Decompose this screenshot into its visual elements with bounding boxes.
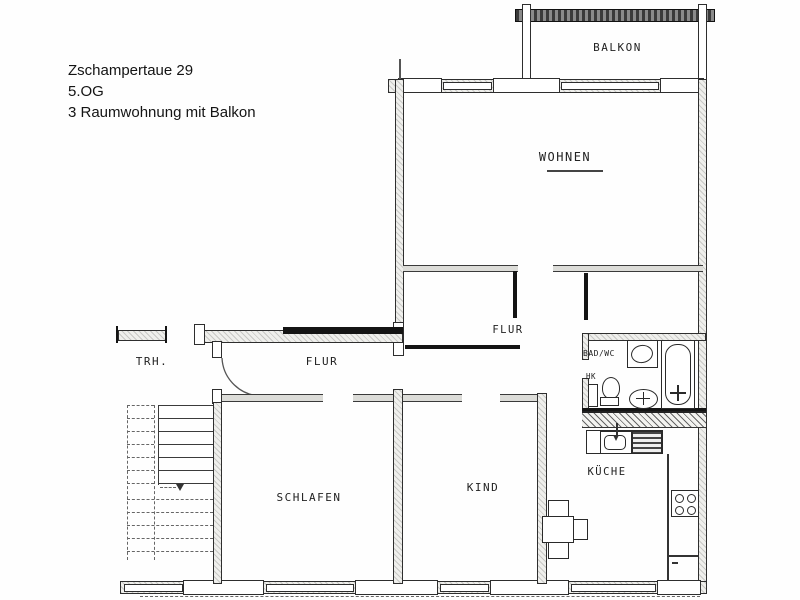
stair-arrow-tail [160, 487, 176, 488]
window-sill-north-1 [443, 82, 492, 90]
label-schlafen: SCHLAFEN [266, 491, 352, 504]
wall-schlafen-kind [393, 389, 403, 584]
window-south-3 [490, 580, 569, 595]
window-south-1 [183, 580, 264, 595]
window-sill-south-2 [266, 584, 354, 592]
wall-flur-partition [405, 345, 520, 349]
wall-wohnen-west [395, 79, 404, 347]
stair-tread [158, 457, 213, 458]
stairs-divider [154, 405, 155, 560]
label-balkon: BALKON [560, 41, 675, 54]
balcony-railing [515, 9, 715, 22]
window-sill-south-1 [124, 584, 183, 592]
radiator [588, 384, 598, 407]
stair-tread-hidden [127, 483, 154, 484]
window-north-2 [493, 78, 560, 93]
stove-burner [675, 506, 684, 515]
stair-tread-hidden [127, 418, 154, 419]
label-bad-wc: BAD/WC [583, 349, 627, 358]
stair-tread [158, 483, 213, 484]
label-kueche: KÜCHE [579, 466, 635, 478]
balcony-post-left [522, 4, 531, 80]
wall-stub-wohnen-door-right [584, 273, 588, 320]
stair-tread [158, 418, 213, 419]
label-hk: HK [586, 372, 606, 381]
wall-schlafen-west [213, 402, 222, 584]
toilet-bowl [602, 377, 620, 399]
wall-kind-kueche [537, 393, 547, 584]
header-floor: 5.OG [68, 81, 256, 102]
kitchen-faucet-arrow [613, 435, 619, 441]
label-flur-lower: FLUR [294, 355, 350, 368]
floorplan-canvas: Zschampertaue 29 5.OG 3 Raumwohnung mit … [0, 0, 800, 600]
window-sill-north-2 [561, 82, 659, 90]
plan-header: Zschampertaue 29 5.OG 3 Raumwohnung mit … [68, 60, 256, 123]
wall-corridor-north-band [283, 327, 403, 334]
scan-artifact-line [140, 596, 700, 597]
stair-tread [158, 431, 213, 432]
stove-burner [687, 494, 696, 503]
stair-tread-hidden [127, 512, 213, 513]
kitchen-chair-bottom [548, 542, 569, 559]
stove-burner [675, 494, 684, 503]
wall-stub-wohnen-door-left [513, 271, 517, 318]
stove-burner [687, 506, 696, 515]
stair-tread [158, 405, 213, 406]
wall-schlafen-north-2 [353, 394, 462, 402]
stair-direction-arrow [176, 484, 184, 491]
stair-tread [158, 444, 213, 445]
kitchen-counter-divider [669, 555, 698, 557]
stair-tread-hidden [127, 444, 154, 445]
wall-trh-cap-right [165, 326, 167, 343]
stair-tread-hidden [127, 551, 213, 552]
kitchen-table [542, 516, 574, 543]
kitchen-counter-edge [667, 454, 669, 581]
stair-tread-hidden [127, 405, 154, 406]
window-sill-south-4 [571, 584, 656, 592]
wall-schlafen-north-1 [222, 394, 323, 402]
wall-trh-top [118, 330, 166, 341]
toilet-cistern [600, 397, 619, 406]
bidet-cross-v [643, 392, 644, 405]
stair-tread-hidden [127, 457, 154, 458]
window-sill-south-3 [440, 584, 489, 592]
stair-tread-hidden [127, 538, 213, 539]
stair-edge [158, 405, 159, 485]
bathtub-tap-cross-v [677, 385, 679, 401]
balcony-post-right [698, 4, 707, 80]
wall-wohnen-south-left [403, 265, 518, 272]
kitchen-drainer [632, 431, 662, 454]
stair-tread-hidden [127, 499, 213, 500]
stair-tread-hidden [127, 470, 154, 471]
stair-tread-hidden [127, 525, 213, 526]
wall-bath-kitchen-hatched [582, 411, 706, 428]
kitchen-counter-mark [672, 562, 678, 564]
label-flur-upper: FLUR [480, 324, 536, 336]
label-trh: TRH. [124, 355, 180, 368]
label-kind: KIND [455, 481, 511, 494]
window-south-4 [657, 580, 701, 595]
window-north-1 [398, 78, 442, 93]
stair-tread-hidden [127, 431, 154, 432]
wall-trh-cap-left [116, 326, 118, 343]
wall-wohnen-south-right [553, 265, 703, 272]
label-wohnen: WOHNEN [515, 150, 615, 164]
stair-tread [158, 470, 213, 471]
label-wohnen-underline [547, 170, 603, 172]
wall-tick-north-left [399, 59, 401, 80]
header-address: Zschampertaue 29 [68, 60, 256, 81]
header-description: 3 Raumwohnung mit Balkon [68, 102, 256, 123]
kitchen-chair-top [548, 500, 569, 517]
